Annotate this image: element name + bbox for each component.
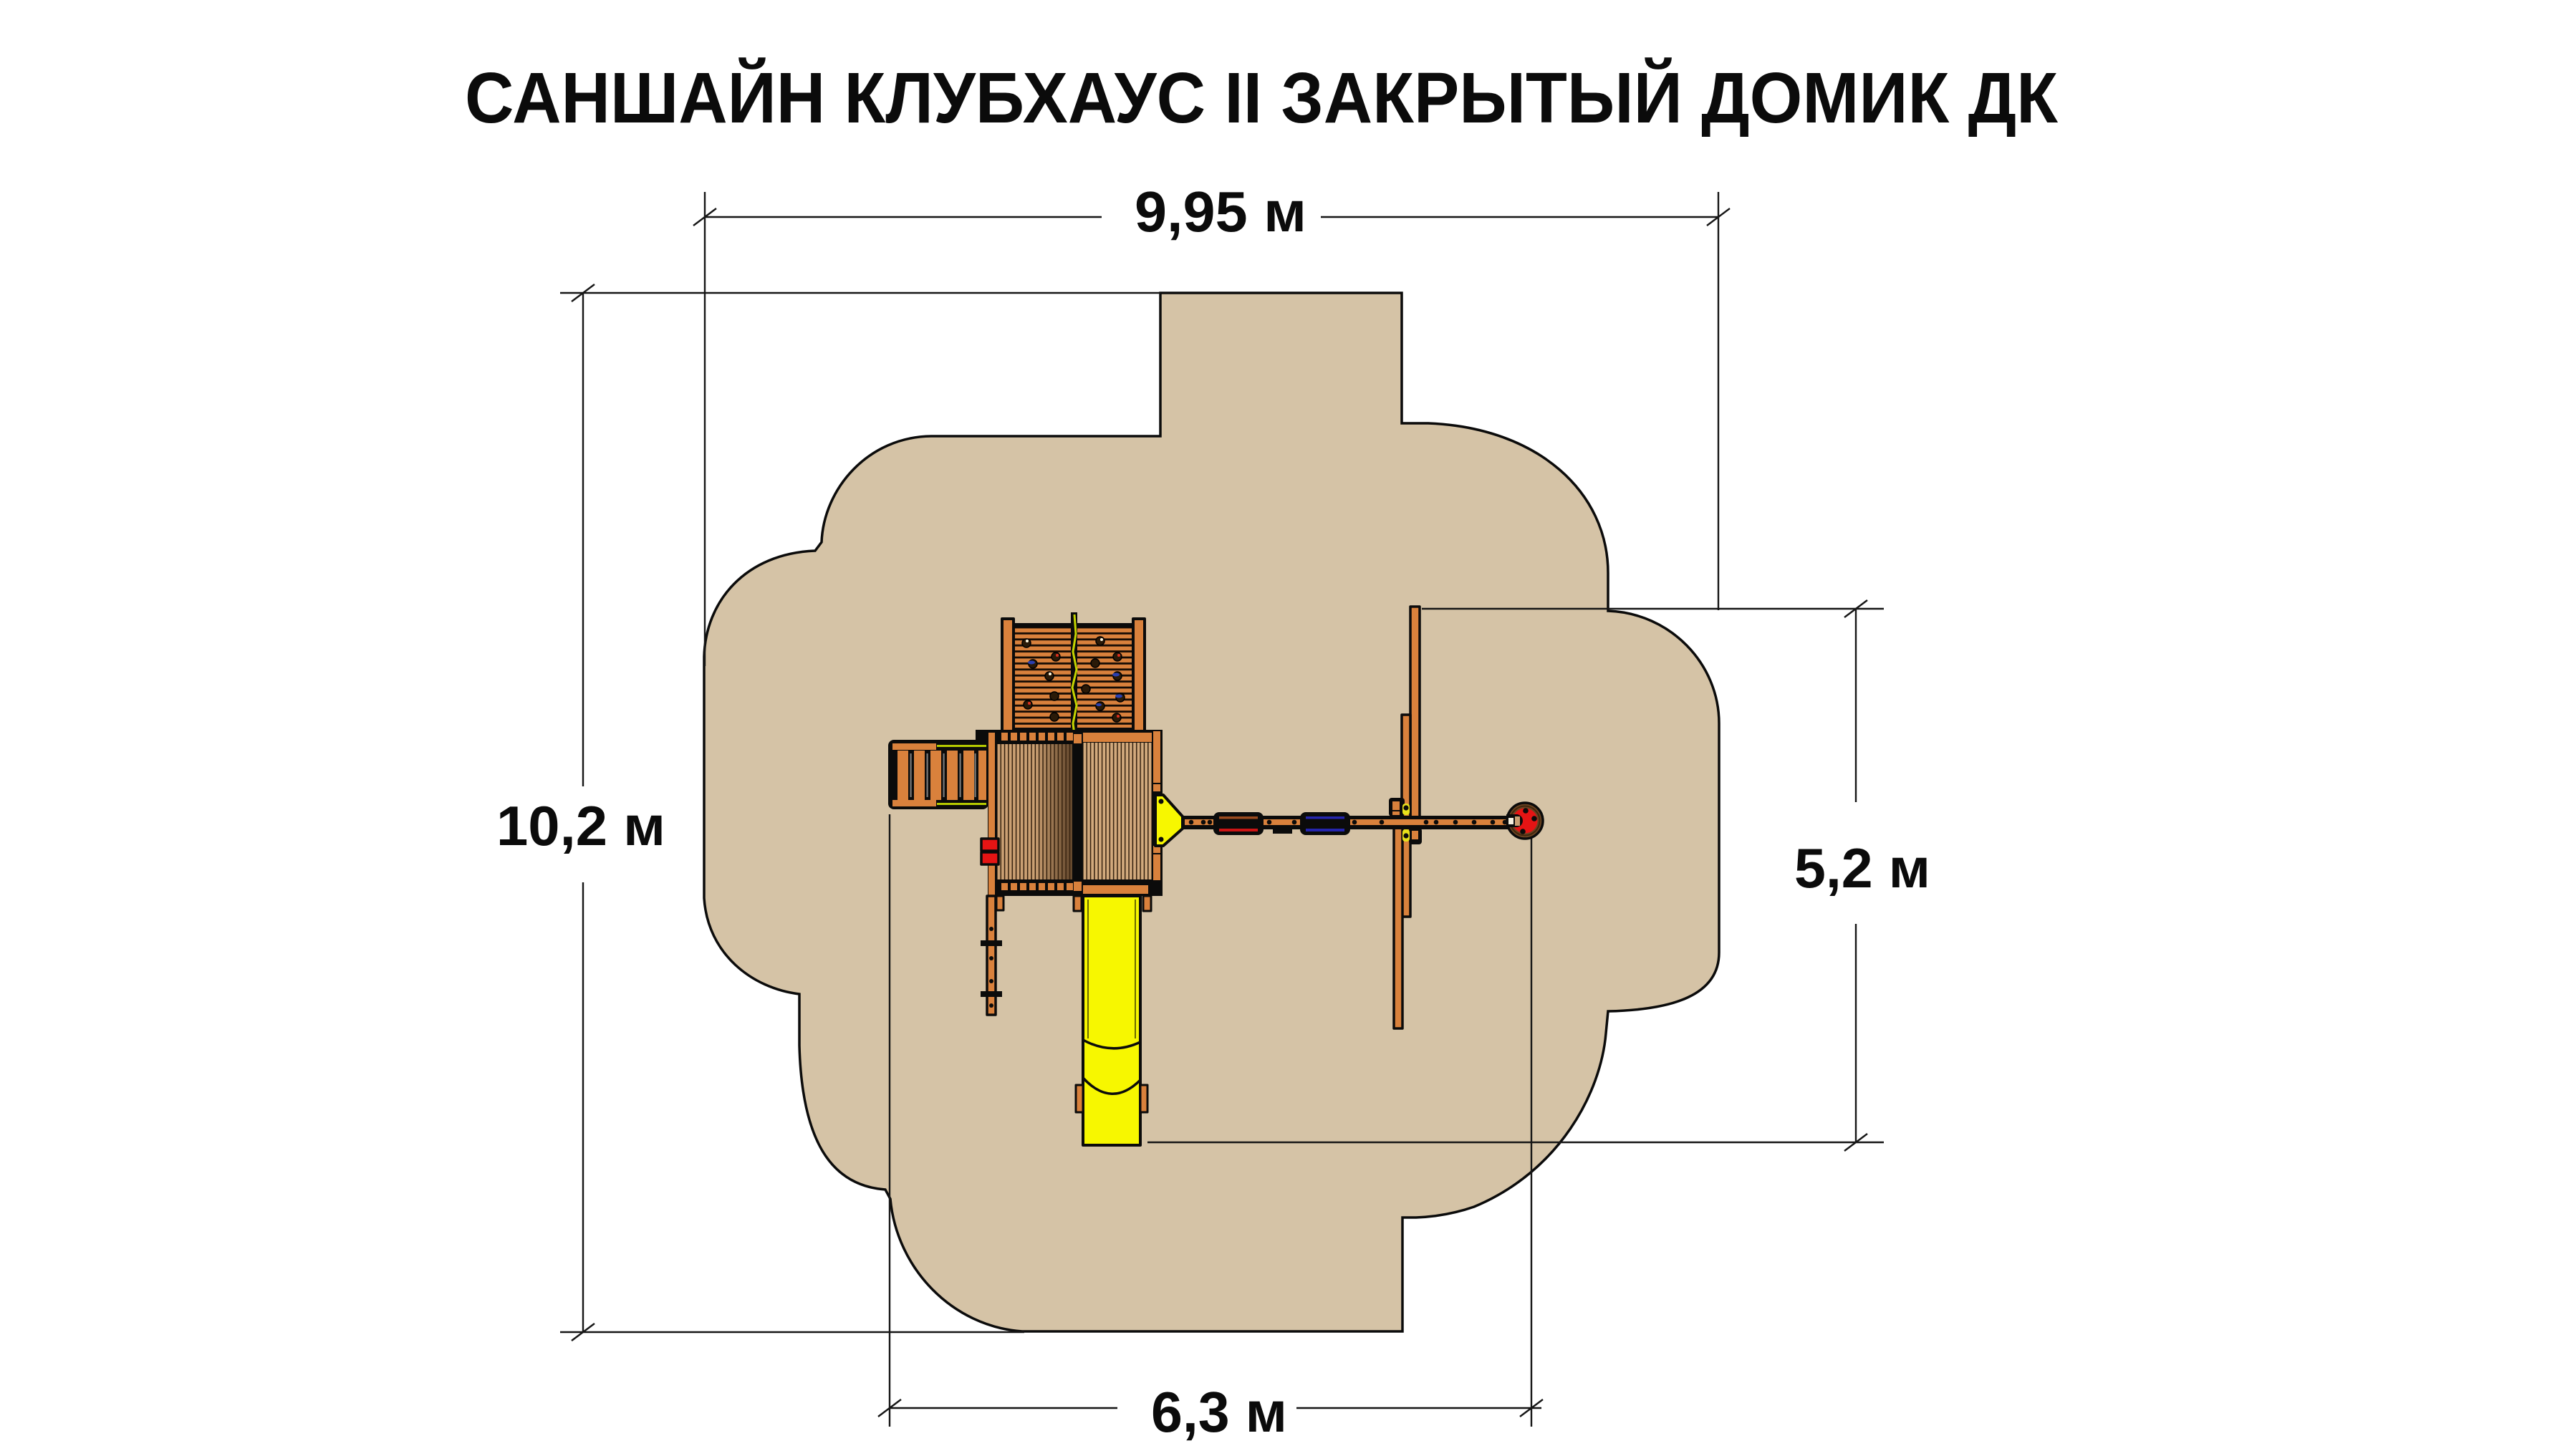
svg-text:6,3 м: 6,3 м xyxy=(1151,1380,1287,1444)
svg-text:9,95 м: 9,95 м xyxy=(1135,180,1306,244)
svg-text:САНШАЙН КЛУБХАУС II ЗАКРЫТЫЙ Д: САНШАЙН КЛУБХАУС II ЗАКРЫТЫЙ ДОМИК ДК xyxy=(465,57,2059,138)
svg-text:10,2 м: 10,2 м xyxy=(496,794,665,857)
svg-text:5,2 м: 5,2 м xyxy=(1794,837,1930,900)
